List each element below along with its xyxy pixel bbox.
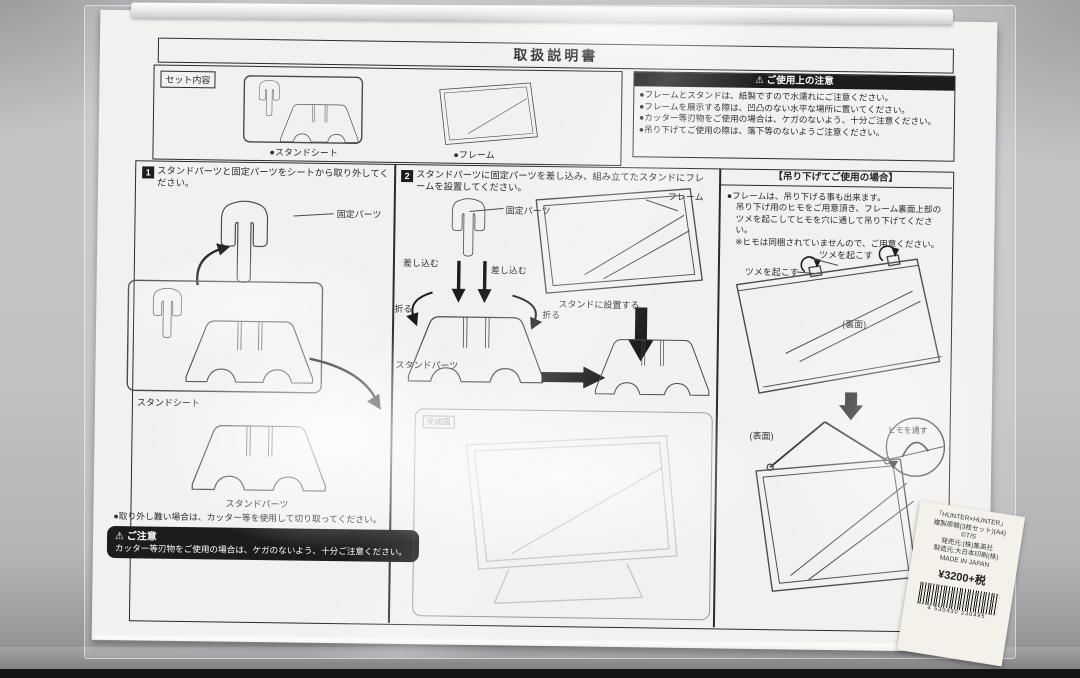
step1-stand-sheet-illustration xyxy=(125,278,325,395)
step2-insert-label-2: 差し込む xyxy=(491,263,527,277)
photo-of-instruction-sheet: 取扱説明書 セット内容 ●スタンドシート xyxy=(0,0,1080,678)
instruction-sheet: 取扱説明書 セット内容 ●スタンドシート xyxy=(92,10,998,652)
step2-place-on-stand-label: スタンドに設置する xyxy=(558,297,639,311)
tsume-label-right: ツメを起こす xyxy=(819,248,873,262)
hanging-line: ツメを起こしてヒモを穴に通して吊り下げてください。 xyxy=(726,213,948,239)
desk-dark-strip xyxy=(0,669,1080,678)
caution-title: ご注意 xyxy=(127,531,157,542)
plastic-bag: 取扱説明書 セット内容 ●スタンドシート xyxy=(84,5,1016,659)
step2-number: 2 xyxy=(401,170,413,182)
step1-number: 1 xyxy=(142,166,154,178)
step1-stand-sheet-label: スタンドシート xyxy=(137,395,200,409)
finished-view-box: 完成図 xyxy=(412,408,713,620)
front-side-label: (表面) xyxy=(749,429,773,442)
usage-notice-title: ご使用上の注意 xyxy=(767,75,834,87)
finished-view-illustration xyxy=(416,412,707,614)
set-contents-tag: セット内容 xyxy=(160,71,215,89)
tsume-label-left: ツメを起こす xyxy=(745,265,799,279)
stand-sheet-illustration xyxy=(242,74,365,146)
warning-icon: ⚠ xyxy=(755,75,764,86)
usage-notice-lines: ●フレームとスタンドは、紙製ですので水濡れにご注意ください。 ●フレームを展示す… xyxy=(634,86,955,143)
step1-stand-parts-illustration xyxy=(186,415,333,497)
set-contents-box: セット内容 ●スタンドシート ●フレーム xyxy=(152,65,622,167)
stand-sheet-label: ●スタンドシート xyxy=(269,145,338,159)
step2-fold-label-1: 折る xyxy=(394,302,412,315)
caution-box: ⚠ ご注意 カッター等刃物をご使用の場合は、ケガのないよう、十分ご注意ください。 xyxy=(107,526,419,562)
frame-label: ●フレーム xyxy=(453,148,494,162)
step2-frame-label: フレーム xyxy=(668,190,704,203)
step2-insert-label-1: 差し込む xyxy=(403,256,439,270)
step1-fixing-part-label: 固定パーツ xyxy=(337,207,382,221)
frame-illustration xyxy=(434,79,543,147)
back-side-label: (裏面) xyxy=(842,317,866,330)
hanging-section-header: 【吊り下げてご使用の場合】 xyxy=(719,168,952,188)
step1-text: スタンドパーツと固定パーツをシートから取り外してください。 xyxy=(157,166,389,192)
step2-assembled-stand-illustration xyxy=(591,323,714,409)
himo-label: ヒモを通す xyxy=(888,425,928,437)
usage-notice-box: ⚠ ご使用上の注意 ●フレームとスタンドは、紙製ですので水濡れにご注意ください。… xyxy=(632,71,955,161)
step1-stand-parts-label: スタンドパーツ xyxy=(225,497,288,511)
caution-warning-icon: ⚠ xyxy=(115,531,124,542)
step2-stand-parts-label: スタンドパーツ xyxy=(395,358,458,372)
step1-arrow-down xyxy=(303,353,392,416)
